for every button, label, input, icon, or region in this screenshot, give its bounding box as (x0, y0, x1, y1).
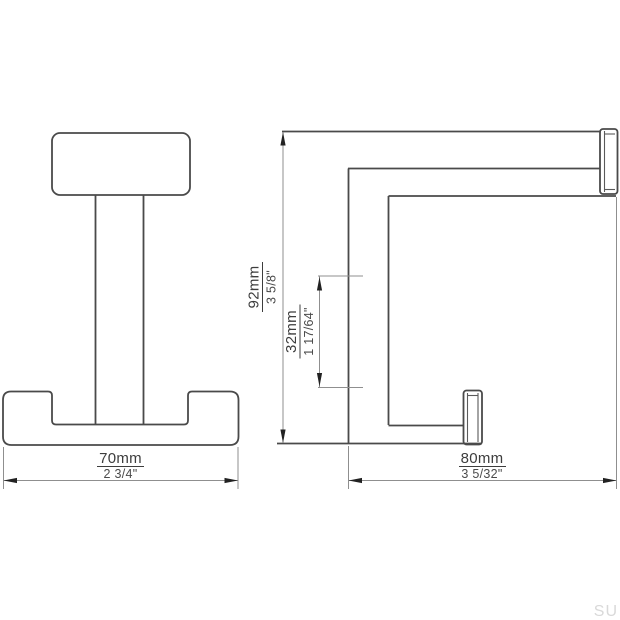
arrowhead-down-icon (317, 373, 322, 387)
spacing-inch-label: 1 17/64" (302, 307, 316, 356)
side-lower-tip-outline (464, 391, 483, 445)
spacing-mm-label: 32mm (283, 310, 300, 353)
front-base (3, 392, 239, 446)
depth-inch-label: 3 5/32" (461, 467, 502, 481)
technical-drawing-page: 70mm 2 3/4" (0, 0, 620, 620)
height-label-group: 92mm 3 5/8" (246, 262, 279, 312)
side-view (277, 129, 618, 445)
dimension-width: 70mm 2 3/4" (4, 447, 239, 489)
spacing-label-group: 32mm 1 17/64" (283, 305, 316, 359)
depth-mm-label: 80mm (461, 450, 504, 467)
hook-technical-drawing: 70mm 2 3/4" (0, 0, 620, 620)
width-inch-label: 2 3/4" (103, 467, 137, 481)
arrowhead-left-icon (349, 478, 363, 483)
arrowhead-left-icon (4, 478, 18, 483)
dimension-height: 92mm 3 5/8" (246, 132, 286, 443)
arrowhead-up-icon (280, 132, 285, 146)
height-mm-label: 92mm (246, 266, 263, 309)
dimension-spacing: 32mm 1 17/64" (283, 276, 363, 388)
arrowhead-right-icon (603, 478, 617, 483)
side-lower-tip (464, 391, 483, 445)
width-mm-label: 70mm (99, 450, 142, 467)
height-inch-label: 3 5/8" (265, 270, 279, 304)
watermark-text: SU (594, 603, 618, 620)
arrowhead-right-icon (225, 478, 239, 483)
arrowhead-down-icon (280, 430, 285, 444)
side-hook-plate-outline (600, 129, 618, 194)
side-hook-plate (600, 129, 618, 194)
front-view (3, 133, 239, 445)
front-hook-plate (52, 133, 190, 195)
arrowhead-up-icon (317, 277, 322, 291)
